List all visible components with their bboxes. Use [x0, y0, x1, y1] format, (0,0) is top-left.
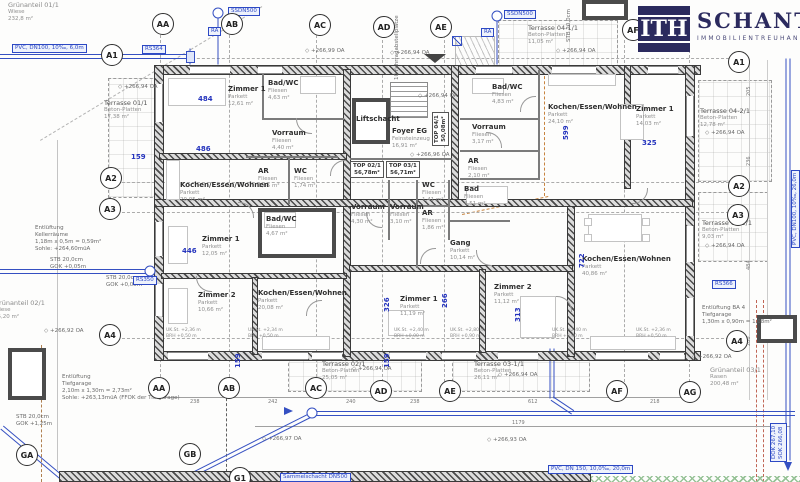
shaft-circle	[492, 11, 503, 22]
dim-side-number: 484	[746, 260, 752, 270]
room-name: Gang	[450, 240, 475, 248]
room-material: Parkett	[582, 264, 671, 271]
room-area-value: 12,61 m²	[228, 101, 266, 108]
window	[660, 352, 684, 360]
window	[190, 66, 230, 74]
elevation-mark: ◇ +266,96 OA	[410, 152, 450, 158]
room-name: Bad	[464, 186, 486, 194]
annotation-note: STB 20,0cm GOK +1,25m	[16, 414, 52, 428]
room-label: ARFliesen1,86 m²	[422, 210, 444, 231]
window-sill-note: UK.St. +2,36 m BRH +0,50 m	[636, 328, 671, 339]
window	[648, 66, 678, 74]
room-label: WCFliesen1,74 m²	[294, 168, 316, 189]
grid-bubble: GA	[16, 444, 38, 466]
window	[686, 96, 694, 136]
elevation-mark: ◇ +266,99 OA	[305, 48, 345, 54]
grid-bubble: A1	[728, 51, 750, 73]
grid-bubble: AF	[606, 380, 628, 402]
room-label: WCFliesen1,41 m²	[422, 182, 444, 203]
room-area-value: 1,41 m²	[422, 197, 444, 204]
room-name: Vorraum	[472, 124, 506, 132]
green-area-value: 75,20 m²	[0, 314, 45, 321]
annotation-note: STB 20,0cm GOK +0,05m	[50, 257, 86, 271]
elevation-mark: ◇ +266,94 OA	[705, 130, 745, 136]
green-name: Grünanteil 03/1	[710, 367, 761, 374]
room-material: Parkett	[450, 248, 475, 255]
room-label: Kochen/Essen/WohnenParkett40,86 m²	[582, 256, 671, 277]
partition-wall	[538, 70, 540, 180]
terrace-area-value: 17,38 m²	[104, 114, 148, 121]
grid-bubble: AA	[152, 13, 174, 35]
dimension-text: 266	[441, 293, 449, 308]
terrace-material: Beton-Platten	[700, 115, 750, 122]
elevation-mark: ◇ +266,92 OA	[692, 354, 732, 360]
room-label: BadFliesen4,51 m²	[464, 186, 486, 207]
partition-wall	[288, 158, 290, 204]
shaft-circle	[145, 266, 156, 277]
shaft-circle	[213, 8, 224, 19]
terrace-material: Beton-Platten	[702, 227, 752, 234]
green-name: Grünanteil 01/1	[8, 2, 59, 9]
window	[686, 226, 694, 262]
door-swing	[330, 160, 346, 176]
green-material: Wiese	[8, 9, 59, 16]
furniture	[642, 234, 650, 242]
annotation-note: 10 Fahrradabstellplätze	[394, 15, 401, 80]
elevation-mark: ◇ +266,94 OA	[418, 93, 458, 99]
partition-wall	[448, 180, 450, 240]
partition-wall	[460, 150, 540, 152]
room-name: Foyer EG	[392, 128, 430, 136]
pipe-label: RS366	[712, 280, 736, 289]
pipe-label: RA	[481, 28, 494, 37]
grid-bubble: AG	[679, 381, 701, 403]
room-label: ARFliesen2,10 m²	[468, 158, 490, 179]
room-name: Bad/WC	[492, 84, 523, 92]
green-material: Wiese	[0, 307, 45, 314]
wall	[480, 270, 485, 352]
elevation-mark: ◇ +266,94 OA	[705, 243, 745, 249]
room-label: Bad/WCFliesen4,67 m²	[266, 216, 297, 237]
elevation-mark: ◇ +266,92 OA	[44, 328, 84, 334]
wall	[350, 266, 572, 271]
grid-bubble: A1	[101, 44, 123, 66]
window	[476, 66, 512, 74]
furniture	[300, 76, 336, 94]
elevation-mark: ◇ +266,93 OA	[487, 437, 527, 443]
wall	[155, 66, 700, 74]
green-material: Rasen	[710, 374, 761, 381]
grid-bubble: GB	[179, 443, 201, 465]
dimension-text: 484	[198, 95, 213, 103]
room-material: Parkett	[228, 94, 266, 101]
terrace-label: Terrasse 01/1Beton-Platten17,38 m²	[104, 100, 148, 121]
partition-wall	[450, 220, 510, 222]
grid-bubble: A2	[100, 167, 122, 189]
company-logo: ITH SCHANTL IMMOBILIENTREUHAND	[638, 6, 800, 52]
green-area-label: Grünanteil 01/1Wiese232,8 m²	[8, 2, 59, 23]
grid-bubble: AC	[309, 14, 331, 36]
room-label: Kochen/Essen/WohnenParkett20,05 m²	[180, 182, 269, 203]
room-label: VorraumFliesen4,40 m²	[272, 130, 306, 151]
room-material: Fliesen	[464, 194, 486, 201]
terrace-area-value: 25,05 m²	[322, 375, 366, 382]
dimension-text: 446	[182, 247, 197, 255]
room-area-value: 4,63 m²	[268, 95, 299, 102]
window	[168, 352, 208, 360]
unit-area: 56,78m²	[353, 170, 381, 177]
door-swing	[476, 250, 492, 266]
drawing-line	[544, 66, 545, 196]
window	[686, 298, 694, 336]
pipe-valve-icon	[186, 51, 195, 63]
grid-bubble: AA	[148, 377, 170, 399]
room-material: Fliesen	[472, 132, 506, 139]
wall-box	[8, 348, 46, 400]
room-label: Liftschacht	[356, 116, 400, 124]
annotation-note: Entlüftung BA 4 Tiefgarage 1,30m x 0,90m…	[702, 305, 772, 326]
door-swing	[420, 248, 436, 264]
flow-arrow-icon	[284, 407, 293, 415]
room-area-value: 4,67 m²	[266, 231, 297, 238]
door-swing	[196, 276, 212, 292]
room-label: Zimmer 1Parkett12,05 m²	[202, 236, 240, 257]
dimension-text: 722	[578, 253, 586, 268]
room-area-value: 1,86 m²	[422, 225, 444, 232]
green-area-value: 232,8 m²	[8, 16, 59, 23]
dimension-text: 486	[196, 145, 211, 153]
dimension-text: 159	[234, 353, 242, 368]
drain-pipe	[0, 54, 190, 59]
grid-bubble: A3	[727, 204, 749, 226]
room-area-value: 10,66 m²	[198, 307, 236, 314]
dim-chain-number: 612	[528, 399, 538, 405]
pipe-label: PVC, DN100, 10‰, 26,0m	[791, 170, 800, 248]
window	[390, 352, 426, 360]
green-name: Grünanteil 02/1	[0, 300, 45, 307]
pipe-label: SSDN500	[504, 10, 536, 19]
wall	[344, 70, 350, 356]
drawing-line	[226, 388, 227, 482]
dim-chain-number: 1179	[512, 420, 525, 426]
room-material: Fliesen	[422, 218, 444, 225]
terrace-material: Beton-Platten	[104, 107, 148, 114]
room-material: Parkett	[202, 244, 240, 251]
window	[258, 66, 282, 74]
pipe-label: RS364	[142, 45, 166, 54]
dim-side-number: 205	[746, 86, 752, 96]
partition-wall	[460, 118, 540, 120]
room-material: Fliesen	[272, 138, 306, 145]
room-material: Fliesen	[468, 166, 490, 173]
room-material: Fliesen	[390, 212, 424, 219]
room-material: Feinsteinzeug	[392, 136, 430, 143]
room-area-value: 12,05 m²	[202, 251, 240, 258]
dimension-text: 159	[131, 153, 146, 161]
pipe-label: PVC, DN 150, 10,0‰, 20,0m	[548, 465, 633, 474]
room-label: Kochen/Essen/WohnenParkett20,08 m²	[258, 290, 347, 311]
logo-monogram-box: ITH	[638, 6, 690, 52]
logo-name: SCHANTL	[697, 6, 800, 35]
room-name: Bad/WC	[266, 216, 297, 224]
dimension-text: 325	[642, 139, 657, 147]
room-material: Fliesen	[422, 190, 444, 197]
room-name: Zimmer 2	[494, 284, 532, 292]
logo-text: SCHANTL IMMOBILIENTREUHAND	[697, 6, 800, 42]
room-area-value: 20,05 m²	[180, 197, 269, 204]
dim-chain-number: 242	[268, 399, 278, 405]
drawing-line	[444, 30, 445, 392]
pipe-label: RS350	[133, 276, 157, 285]
window	[498, 352, 538, 360]
room-label: Bad/WCFliesen4,83 m²	[492, 84, 523, 105]
window-sill-note: UK.St. +2,40 m BRH +0,90 m	[552, 328, 587, 339]
room-label: Kochen/Essen/WohnenParkett24,10 m²	[548, 104, 637, 125]
room-material: Fliesen	[268, 88, 299, 95]
room-area-value: 11,12 m²	[494, 299, 532, 306]
room-label: Zimmer 1Parkett12,61 m²	[228, 86, 266, 107]
floorplan-sheet: ITH SCHANTL IMMOBILIENTREUHAND Terrasse …	[0, 0, 800, 482]
room-area-value: 40,86 m²	[582, 271, 671, 278]
room-label: VorraumFliesen3,10 m²	[390, 204, 424, 225]
unit-number: TOP 02/1	[353, 163, 381, 170]
furniture	[584, 234, 592, 242]
room-material: Parkett	[494, 292, 532, 299]
room-label: Zimmer 1Parkett14,03 m²	[636, 106, 674, 127]
room-material: Fliesen	[492, 92, 523, 99]
room-label: VorraumFliesen4,30 m²	[351, 204, 385, 225]
room-area-value: 2,10 m²	[468, 173, 490, 180]
room-material: Fliesen	[266, 224, 297, 231]
room-material: Parkett	[400, 304, 438, 311]
pipe-label: Sammelschacht DN500	[280, 473, 351, 482]
drawing-line	[767, 60, 768, 400]
room-label: Zimmer 2Parkett10,66 m²	[198, 292, 236, 313]
drawing-line	[255, 426, 790, 427]
pipe-label: PVC, DN100, 10‰, 6,0m	[12, 44, 87, 53]
grid-bubble: A4	[99, 324, 121, 346]
room-material: Parkett	[258, 298, 347, 305]
room-name: Zimmer 1	[202, 236, 240, 244]
room-area-value: 16,91 m²	[392, 143, 430, 150]
room-label: Zimmer 2Parkett11,12 m²	[494, 284, 532, 305]
room-material: Fliesen	[294, 176, 316, 183]
dim-chain-number: 240	[346, 399, 356, 405]
green-area-label: Grünanteil 03/1Rasen200,48 m²	[710, 367, 761, 388]
room-name: Zimmer 1	[400, 296, 438, 304]
unit-top-label: TOP 02/156,78m²	[350, 161, 384, 178]
elevation-mark: ◇ +266,97 OA	[262, 436, 302, 442]
unit-number: TOP 04/1	[434, 115, 441, 143]
wall	[253, 278, 257, 354]
furniture	[584, 218, 592, 226]
window	[552, 66, 596, 74]
room-area-value: 1,74 m²	[294, 183, 316, 190]
furniture	[588, 214, 642, 242]
elevation-mark: ◇ +266,94 OA	[352, 366, 392, 372]
room-name: WC	[422, 182, 444, 190]
window-sill-note: UK.St. +2,80 m BRH +0,90 m	[450, 328, 485, 339]
drain-pipe	[312, 411, 795, 416]
window	[155, 222, 163, 256]
grid-bubble: A2	[728, 175, 750, 197]
room-label: Zimmer 1Parkett11,19 m²	[400, 296, 438, 317]
dim-chain-number: 238	[190, 399, 200, 405]
unit-top-label: TOP 03/156,71m²	[386, 161, 420, 178]
terrace-area-value: 9,03 m²	[702, 234, 752, 241]
drain-pipe-thin	[497, 21, 498, 65]
room-area-value: 3,17 m²	[472, 139, 506, 146]
room-area-value: 4,30 m²	[351, 219, 385, 226]
dim-side-number: 236	[746, 156, 752, 166]
room-material: Parkett	[636, 114, 674, 121]
room-name: AR	[258, 168, 280, 176]
terrace-name: Terrasse 01/1	[104, 100, 148, 107]
room-area-value: 3,10 m²	[390, 219, 424, 226]
drain-pipe-thin	[218, 17, 219, 65]
room-name: Kochen/Essen/Wohnen	[548, 104, 637, 112]
room-name: AR	[468, 158, 490, 166]
grid-bubble: AE	[430, 16, 452, 38]
partition-wall	[350, 158, 452, 160]
room-name: Zimmer 1	[636, 106, 674, 114]
room-material: Parkett	[548, 112, 637, 119]
room-name: Bad/WC	[268, 80, 299, 88]
grid-bubble: AD	[373, 16, 395, 38]
room-name: AR	[422, 210, 444, 218]
window	[596, 352, 648, 360]
partition-wall	[246, 156, 338, 158]
unit-number: TOP 03/1	[389, 163, 417, 170]
pipe-label: RA	[208, 27, 221, 36]
grid-bubble: AB	[218, 377, 240, 399]
grid-bubble: G1	[229, 467, 251, 482]
unit-top-label: TOP 04/150,08m²	[432, 112, 449, 146]
window	[155, 284, 163, 316]
room-area-value: 4,83 m²	[492, 99, 523, 106]
window-sill-note: UK.St. +2,40 m BRH ±0,00 m	[394, 328, 429, 339]
furniture	[166, 160, 180, 200]
room-name: WC	[294, 168, 316, 176]
furniture	[642, 218, 650, 226]
room-name: Zimmer 2	[198, 292, 236, 300]
window-sill-note: UK.St. +2,36 m BRH +0,50 m	[166, 328, 201, 339]
wall	[452, 66, 458, 206]
grid-bubble: A3	[99, 198, 121, 220]
room-name: Vorraum	[272, 130, 306, 138]
room-area-value: 4,40 m²	[272, 145, 306, 152]
furniture	[168, 288, 188, 324]
dim-chain-number: 218	[650, 399, 660, 405]
drawing-line	[57, 140, 58, 470]
pipe-label: DOK 267,10 SOK 266,08	[770, 423, 787, 462]
staircase	[390, 82, 428, 118]
terrace-name: Terrasse 04-2/1	[700, 108, 750, 115]
room-name: Liftschacht	[356, 116, 400, 124]
logo-monogram: ITH	[638, 15, 689, 43]
room-label: GangParkett10,14 m²	[450, 240, 475, 261]
terrace-name: Terrasse 03-1/1	[474, 361, 524, 368]
wall-box	[582, 0, 628, 20]
shaft-circle	[307, 408, 318, 419]
green-area-label: Grünanteil 02/1Wiese75,20 m²	[0, 300, 45, 321]
dim-chain-number: 238	[410, 399, 420, 405]
room-material: Fliesen	[351, 212, 385, 219]
dimension-text: 326	[383, 297, 391, 312]
furniture	[168, 78, 226, 106]
dimension-text: 599	[562, 125, 570, 140]
green-area-value: 200,48 m²	[710, 381, 761, 388]
furniture	[168, 226, 188, 264]
grid-bubble: AE	[439, 380, 461, 402]
grid-bubble: AC	[305, 377, 327, 399]
window	[262, 352, 308, 360]
room-name: Kochen/Essen/Wohnen	[582, 256, 671, 264]
room-name: Zimmer 1	[228, 86, 266, 94]
drain-pipe	[786, 59, 791, 461]
room-name: Kochen/Essen/Wohnen	[258, 290, 347, 298]
room-label: VorraumFliesen3,17 m²	[472, 124, 506, 145]
room-area-value: 10,14 m²	[450, 255, 475, 262]
terrace-label: Terrasse 04-2/1Beton-Platten12,78 m²	[700, 108, 750, 129]
room-area-value: 4,51 m²	[464, 201, 486, 208]
elevation-mark: ◇ +266,94 OA	[556, 48, 596, 54]
window	[312, 352, 342, 360]
flow-arrow-icon	[784, 462, 792, 471]
room-label: Foyer EGFeinsteinzeug16,91 m²	[392, 128, 430, 149]
terrace-area-value: 12,78 m²	[700, 122, 750, 129]
unit-area: 50,08m²	[441, 115, 448, 143]
room-label: Bad/WCFliesen4,63 m²	[268, 80, 299, 101]
unit-area: 56,71m²	[389, 170, 417, 177]
elevation-mark: ◇ +266,94 OA	[498, 372, 538, 378]
elevation-mark: ◇ +266,94 OA	[118, 84, 158, 90]
window-sill-note: UK.St. +2,34 m BRH +0,50 m	[248, 328, 283, 339]
furniture	[548, 74, 616, 86]
room-name: Vorraum	[351, 204, 385, 212]
annotation-note: Entlüftung Kellerräume 1,18m x 0,5m = 0,…	[35, 225, 101, 254]
window	[442, 352, 476, 360]
room-area-value: 11,19 m²	[400, 311, 438, 318]
dimension-text: 313	[514, 307, 522, 322]
room-area-value: 20,08 m²	[258, 305, 347, 312]
room-area-value: 14,03 m²	[636, 121, 674, 128]
room-material: Parkett	[180, 190, 269, 197]
logo-subtitle: IMMOBILIENTREUHAND	[697, 35, 800, 42]
grid-bubble: AB	[221, 13, 243, 35]
room-name: Vorraum	[390, 204, 424, 212]
grid-bubble: A4	[726, 330, 748, 352]
room-material: Parkett	[198, 300, 236, 307]
grid-bubble: AD	[370, 380, 392, 402]
room-name: Kochen/Essen/Wohnen	[180, 182, 269, 190]
annotation-note: STB 20,0cm	[566, 9, 573, 42]
floor-drain-icon	[452, 36, 462, 46]
